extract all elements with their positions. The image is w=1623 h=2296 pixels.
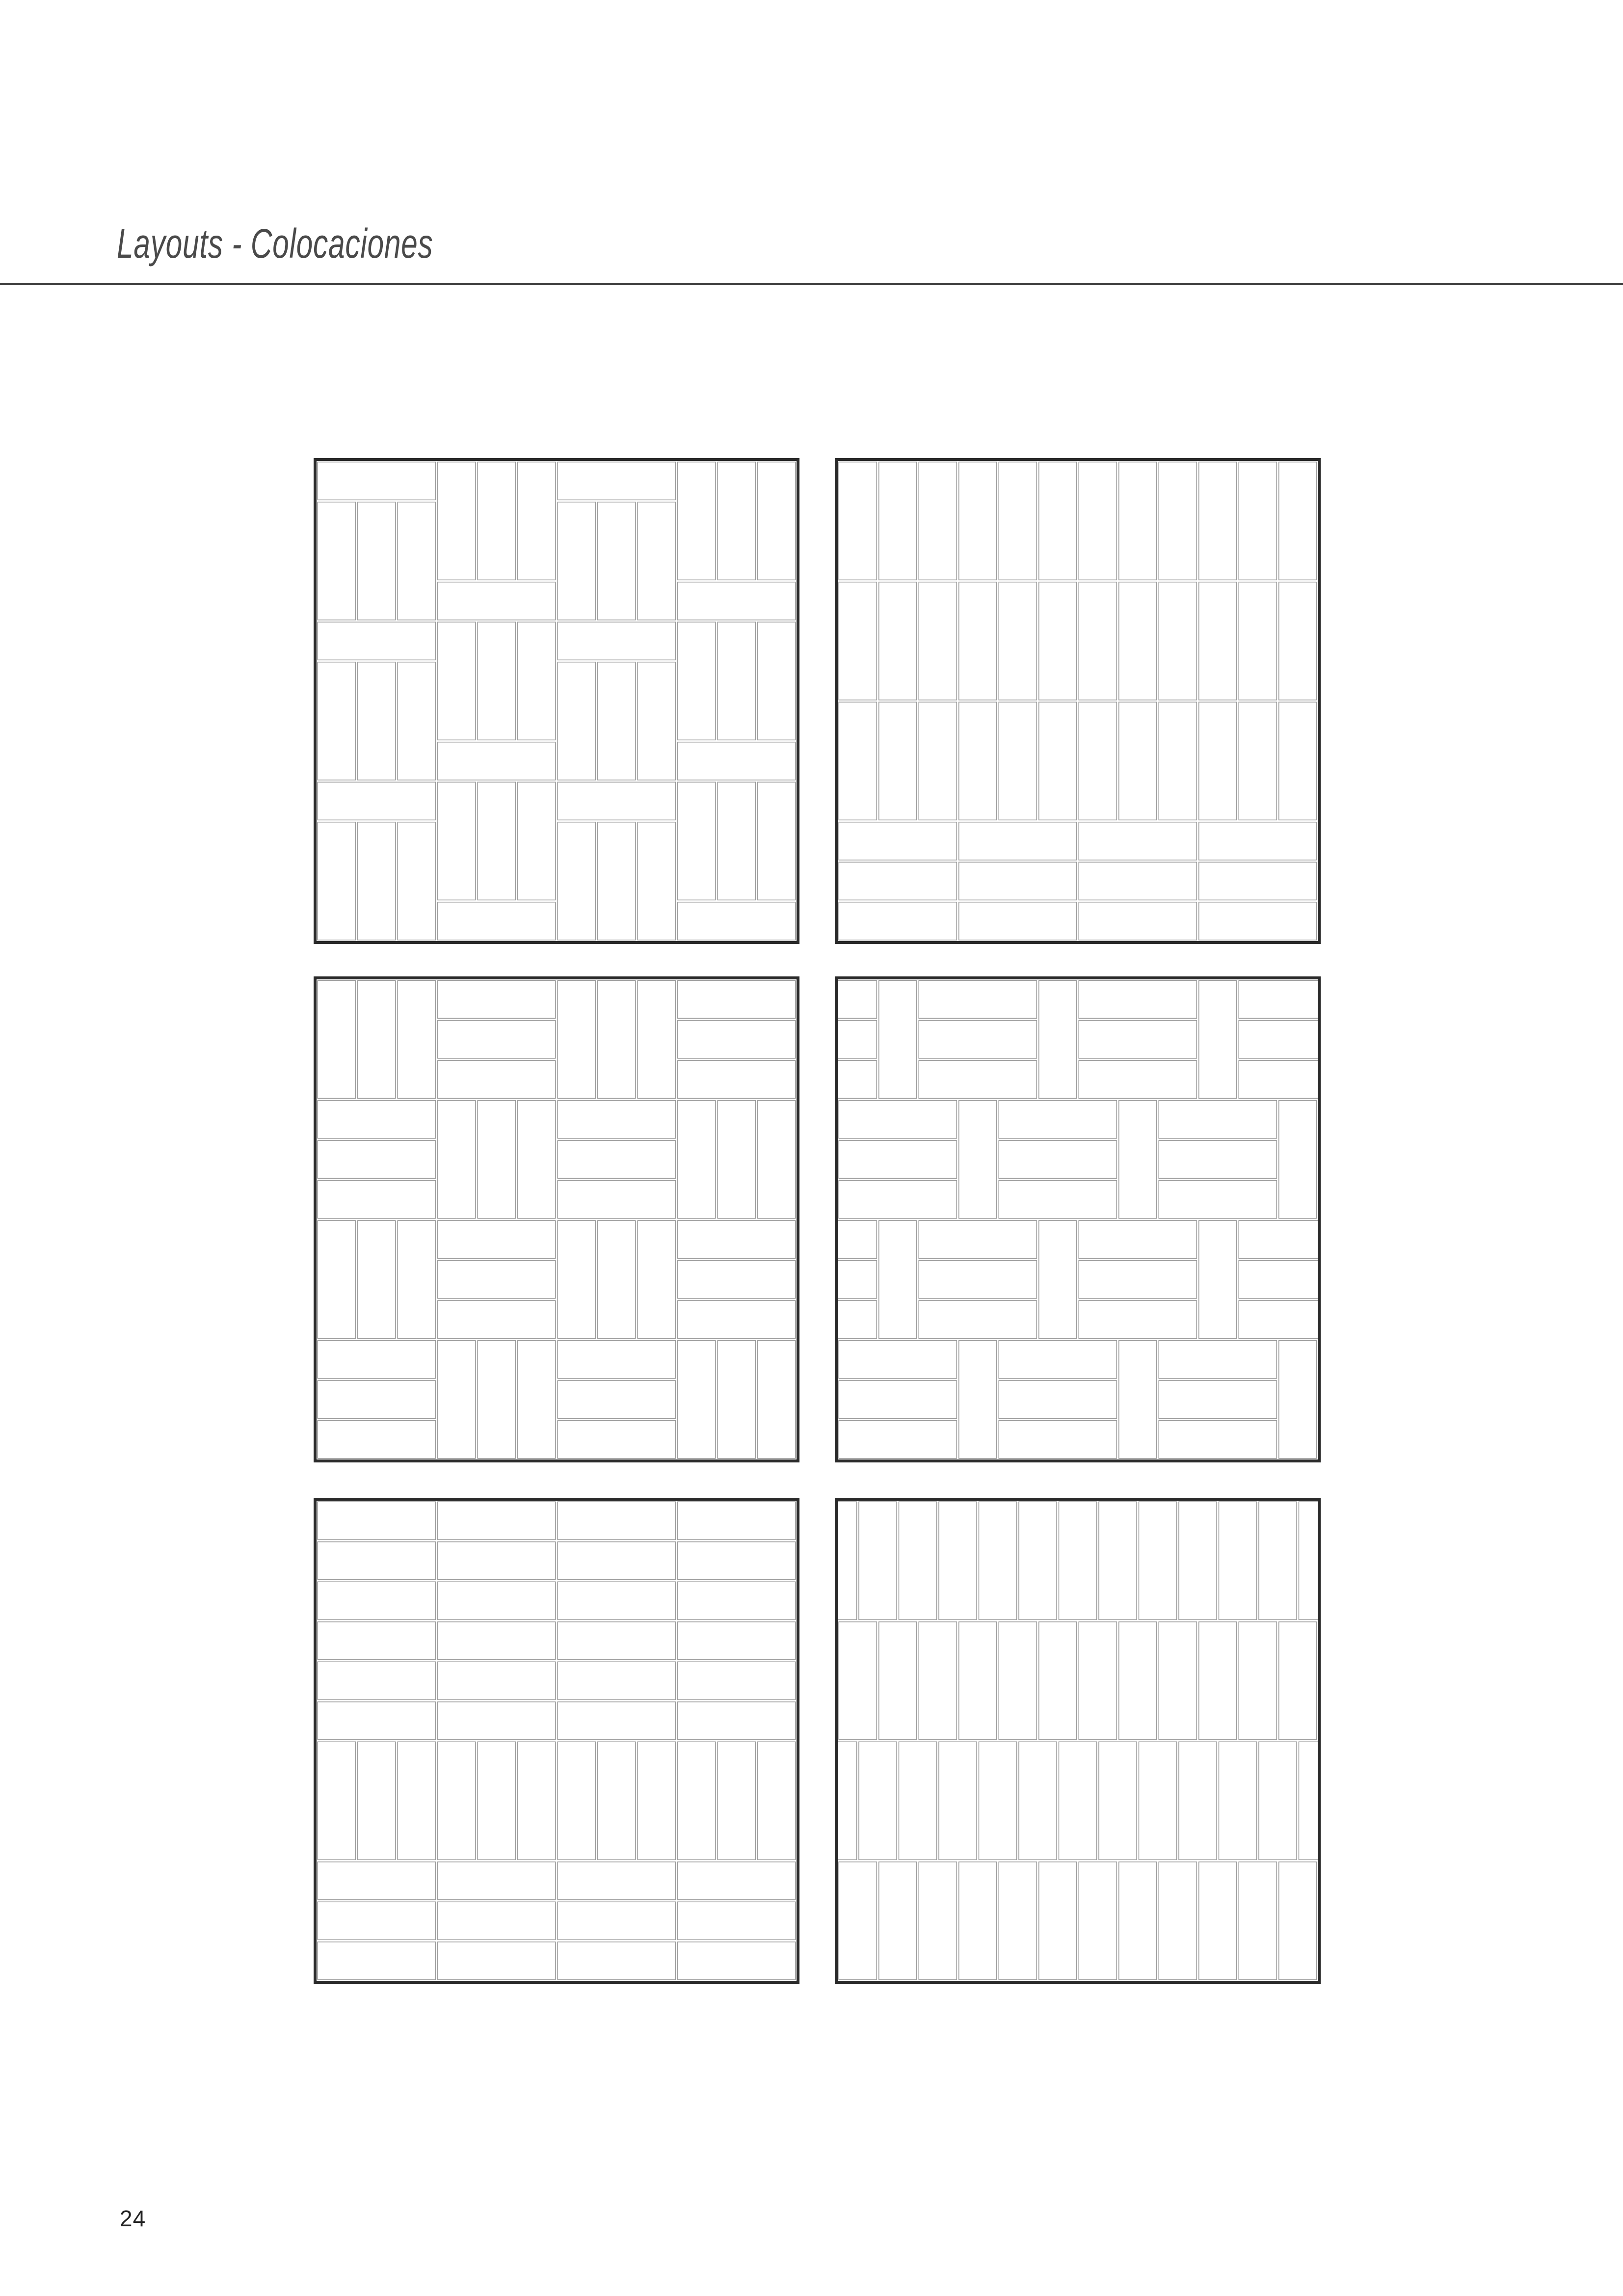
header-rule: [0, 283, 1623, 285]
tile-pattern-box-4: [835, 976, 1321, 1462]
tile-pattern-box-3: [314, 976, 799, 1462]
tile-pattern-svg-pattern-1: [317, 461, 797, 941]
tile-pattern-svg-pattern-5: [317, 1501, 797, 1981]
tile-pattern-svg-pattern-4: [838, 979, 1318, 1459]
tile-pattern-svg-pattern-6: [838, 1501, 1318, 1981]
page-number: 24: [120, 2205, 146, 2232]
tile-pattern-box-5: [314, 1498, 799, 1984]
tile-pattern-svg-pattern-2: [838, 461, 1318, 941]
tile-pattern-box-1: [314, 458, 799, 944]
tile-pattern-svg-pattern-3: [317, 979, 797, 1459]
catalog-page: Layouts - Colocaciones 24: [0, 0, 1623, 2296]
tile-pattern-box-2: [835, 458, 1321, 944]
page-title: Layouts - Colocaciones: [117, 220, 433, 268]
tile-pattern-box-6: [835, 1498, 1321, 1984]
